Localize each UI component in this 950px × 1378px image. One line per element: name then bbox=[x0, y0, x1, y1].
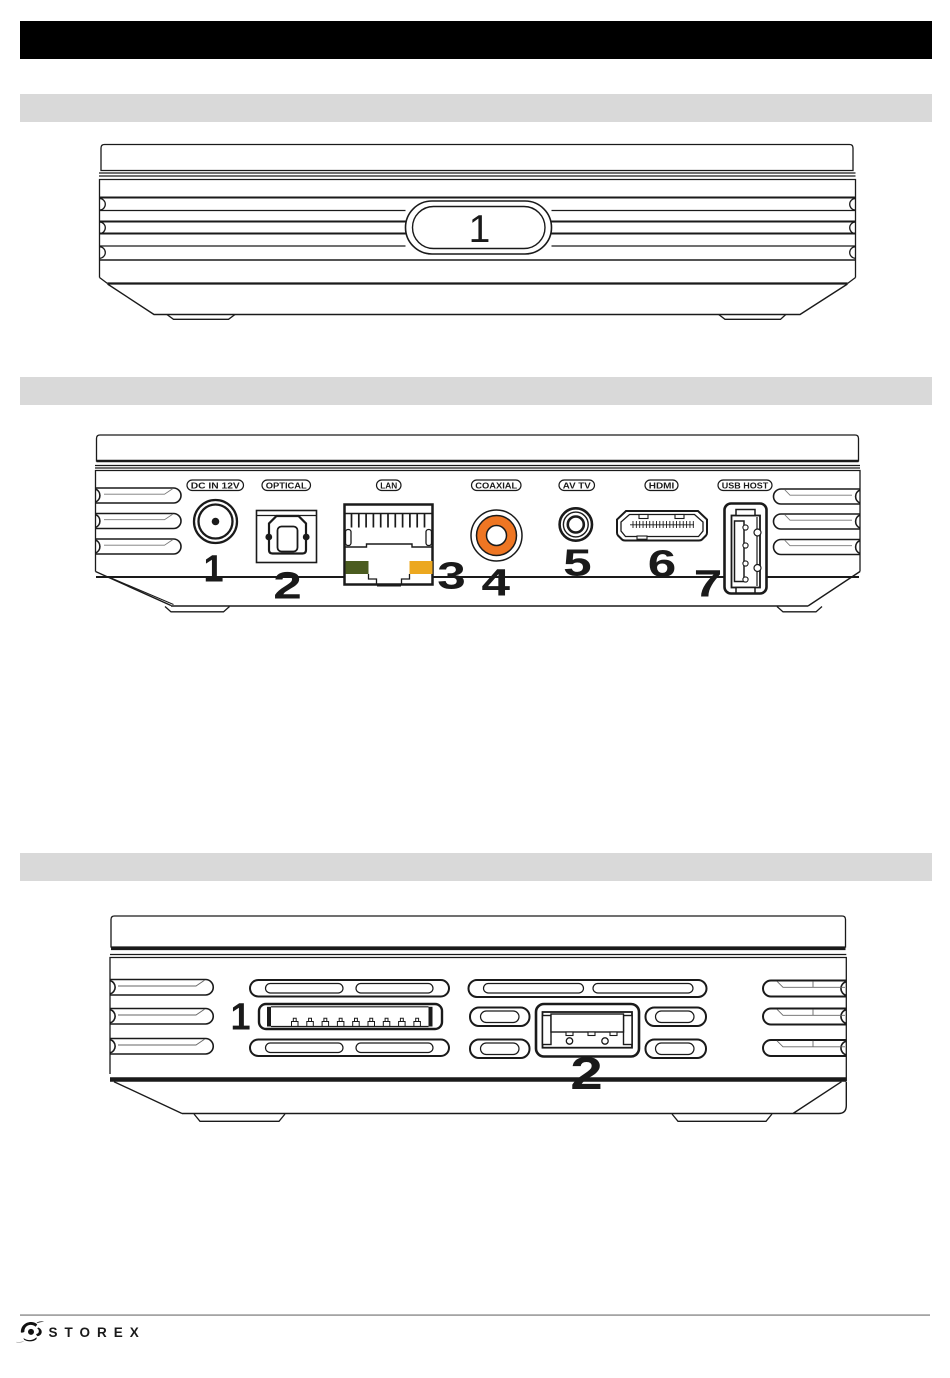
svg-text:4: 4 bbox=[481, 561, 510, 604]
svg-text:HDMI: HDMI bbox=[649, 481, 675, 490]
svg-text:COAXIAL: COAXIAL bbox=[475, 481, 517, 490]
svg-text:USB HOST: USB HOST bbox=[722, 481, 769, 490]
svg-text:1: 1 bbox=[469, 208, 491, 251]
svg-text:DC IN 12V: DC IN 12V bbox=[191, 481, 241, 490]
svg-text:7: 7 bbox=[694, 562, 723, 605]
svg-text:STOREX: STOREX bbox=[49, 1325, 146, 1340]
svg-text:OPTICAL: OPTICAL bbox=[266, 481, 307, 490]
svg-text:6: 6 bbox=[648, 542, 677, 585]
svg-text:2: 2 bbox=[570, 1049, 603, 1099]
svg-text:1: 1 bbox=[203, 547, 223, 590]
svg-text:5: 5 bbox=[563, 541, 592, 584]
svg-text:AV TV: AV TV bbox=[563, 481, 592, 490]
svg-text:1: 1 bbox=[230, 995, 250, 1038]
svg-text:3: 3 bbox=[437, 554, 466, 597]
svg-text:LAN: LAN bbox=[380, 481, 397, 490]
svg-text:2: 2 bbox=[273, 564, 302, 607]
